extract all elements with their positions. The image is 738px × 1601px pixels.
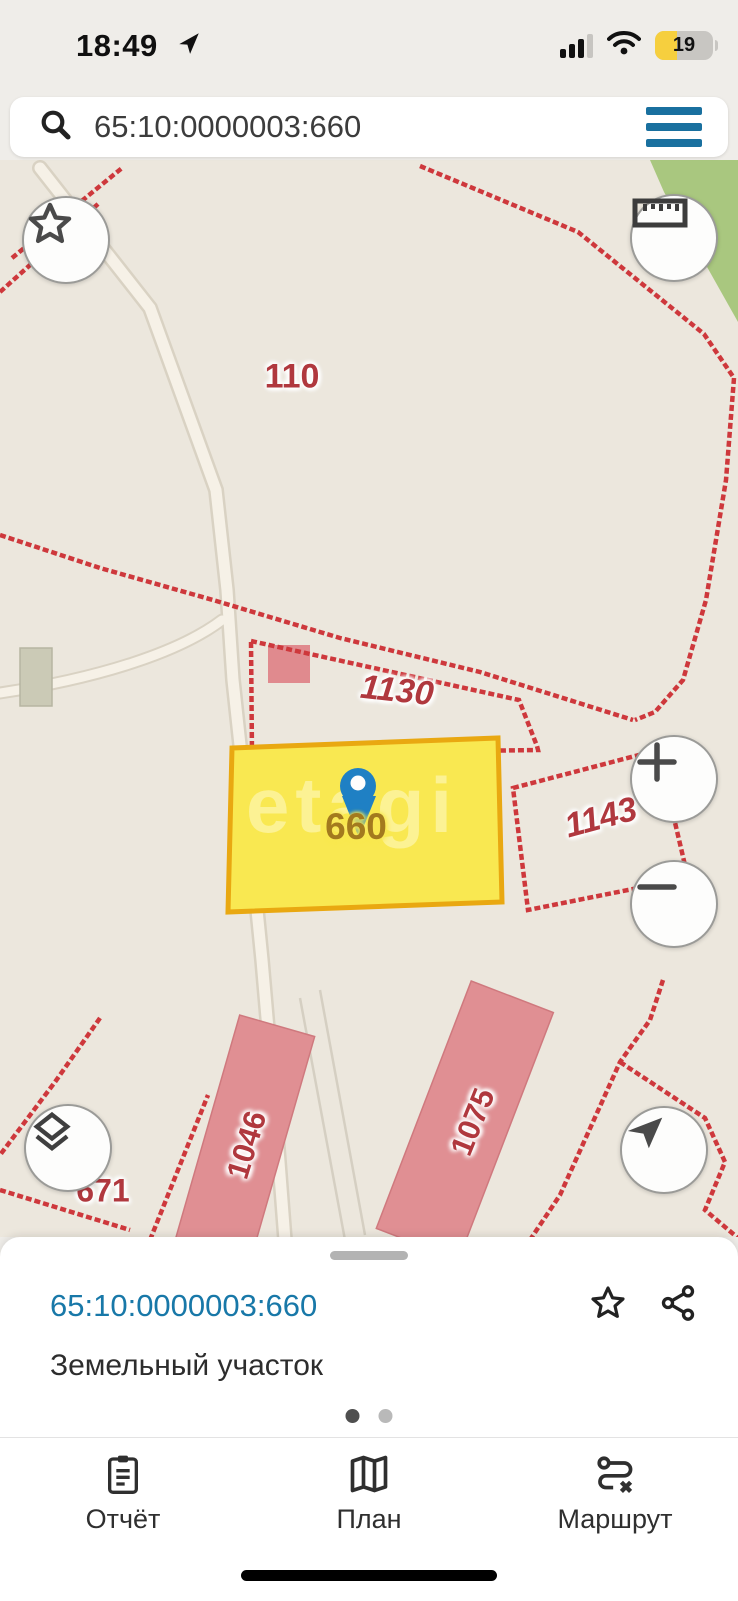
- map-canvas[interactable]: etagi 110 1130 1143 671 1046 1075 660: [0, 160, 738, 1237]
- wifi-icon: [607, 30, 641, 61]
- battery-icon: 19: [655, 31, 713, 60]
- nav-item-report[interactable]: Отчёт: [0, 1438, 246, 1601]
- zoom-out-button[interactable]: [630, 860, 718, 948]
- layers-button[interactable]: [24, 1104, 112, 1192]
- sheet-drag-handle[interactable]: [330, 1251, 408, 1260]
- menu-button[interactable]: [646, 107, 702, 147]
- cadastral-number-link[interactable]: 65:10:0000003:660: [50, 1288, 317, 1324]
- search-box: [10, 97, 728, 157]
- nav-item-route[interactable]: Маршрут: [492, 1438, 738, 1601]
- status-bar: 18:49 19: [0, 0, 738, 95]
- report-icon: [103, 1452, 143, 1496]
- my-location-button[interactable]: [620, 1106, 708, 1194]
- favorites-button[interactable]: [22, 196, 110, 284]
- selected-parcel-number: 660: [325, 806, 387, 848]
- favorite-star-icon[interactable]: [588, 1283, 628, 1328]
- nav-label: План: [336, 1504, 401, 1535]
- building-footprint: [20, 648, 52, 706]
- page-indicator: [346, 1409, 393, 1423]
- home-indicator[interactable]: [241, 1570, 497, 1581]
- clock: 18:49: [76, 28, 158, 64]
- parcel-label: 1130: [359, 668, 436, 714]
- zoom-in-button[interactable]: [630, 735, 718, 823]
- bottom-sheet: 65:10:0000003:660 Земельный участок: [0, 1237, 738, 1437]
- search-bar-container: [0, 95, 738, 160]
- search-input[interactable]: [92, 108, 646, 146]
- parcel-label: 110: [265, 358, 320, 397]
- nav-label: Отчёт: [86, 1504, 161, 1535]
- battery-percent: 19: [655, 31, 713, 60]
- object-type-label: Земельный участок: [50, 1349, 323, 1383]
- measure-button[interactable]: [630, 194, 718, 282]
- share-icon[interactable]: [658, 1283, 698, 1328]
- cellular-signal-icon: [560, 34, 593, 58]
- map-icon: [347, 1452, 391, 1496]
- route-icon: [593, 1452, 637, 1496]
- nav-label: Маршрут: [557, 1504, 672, 1535]
- location-services-icon: [176, 30, 202, 61]
- search-icon: [38, 107, 74, 148]
